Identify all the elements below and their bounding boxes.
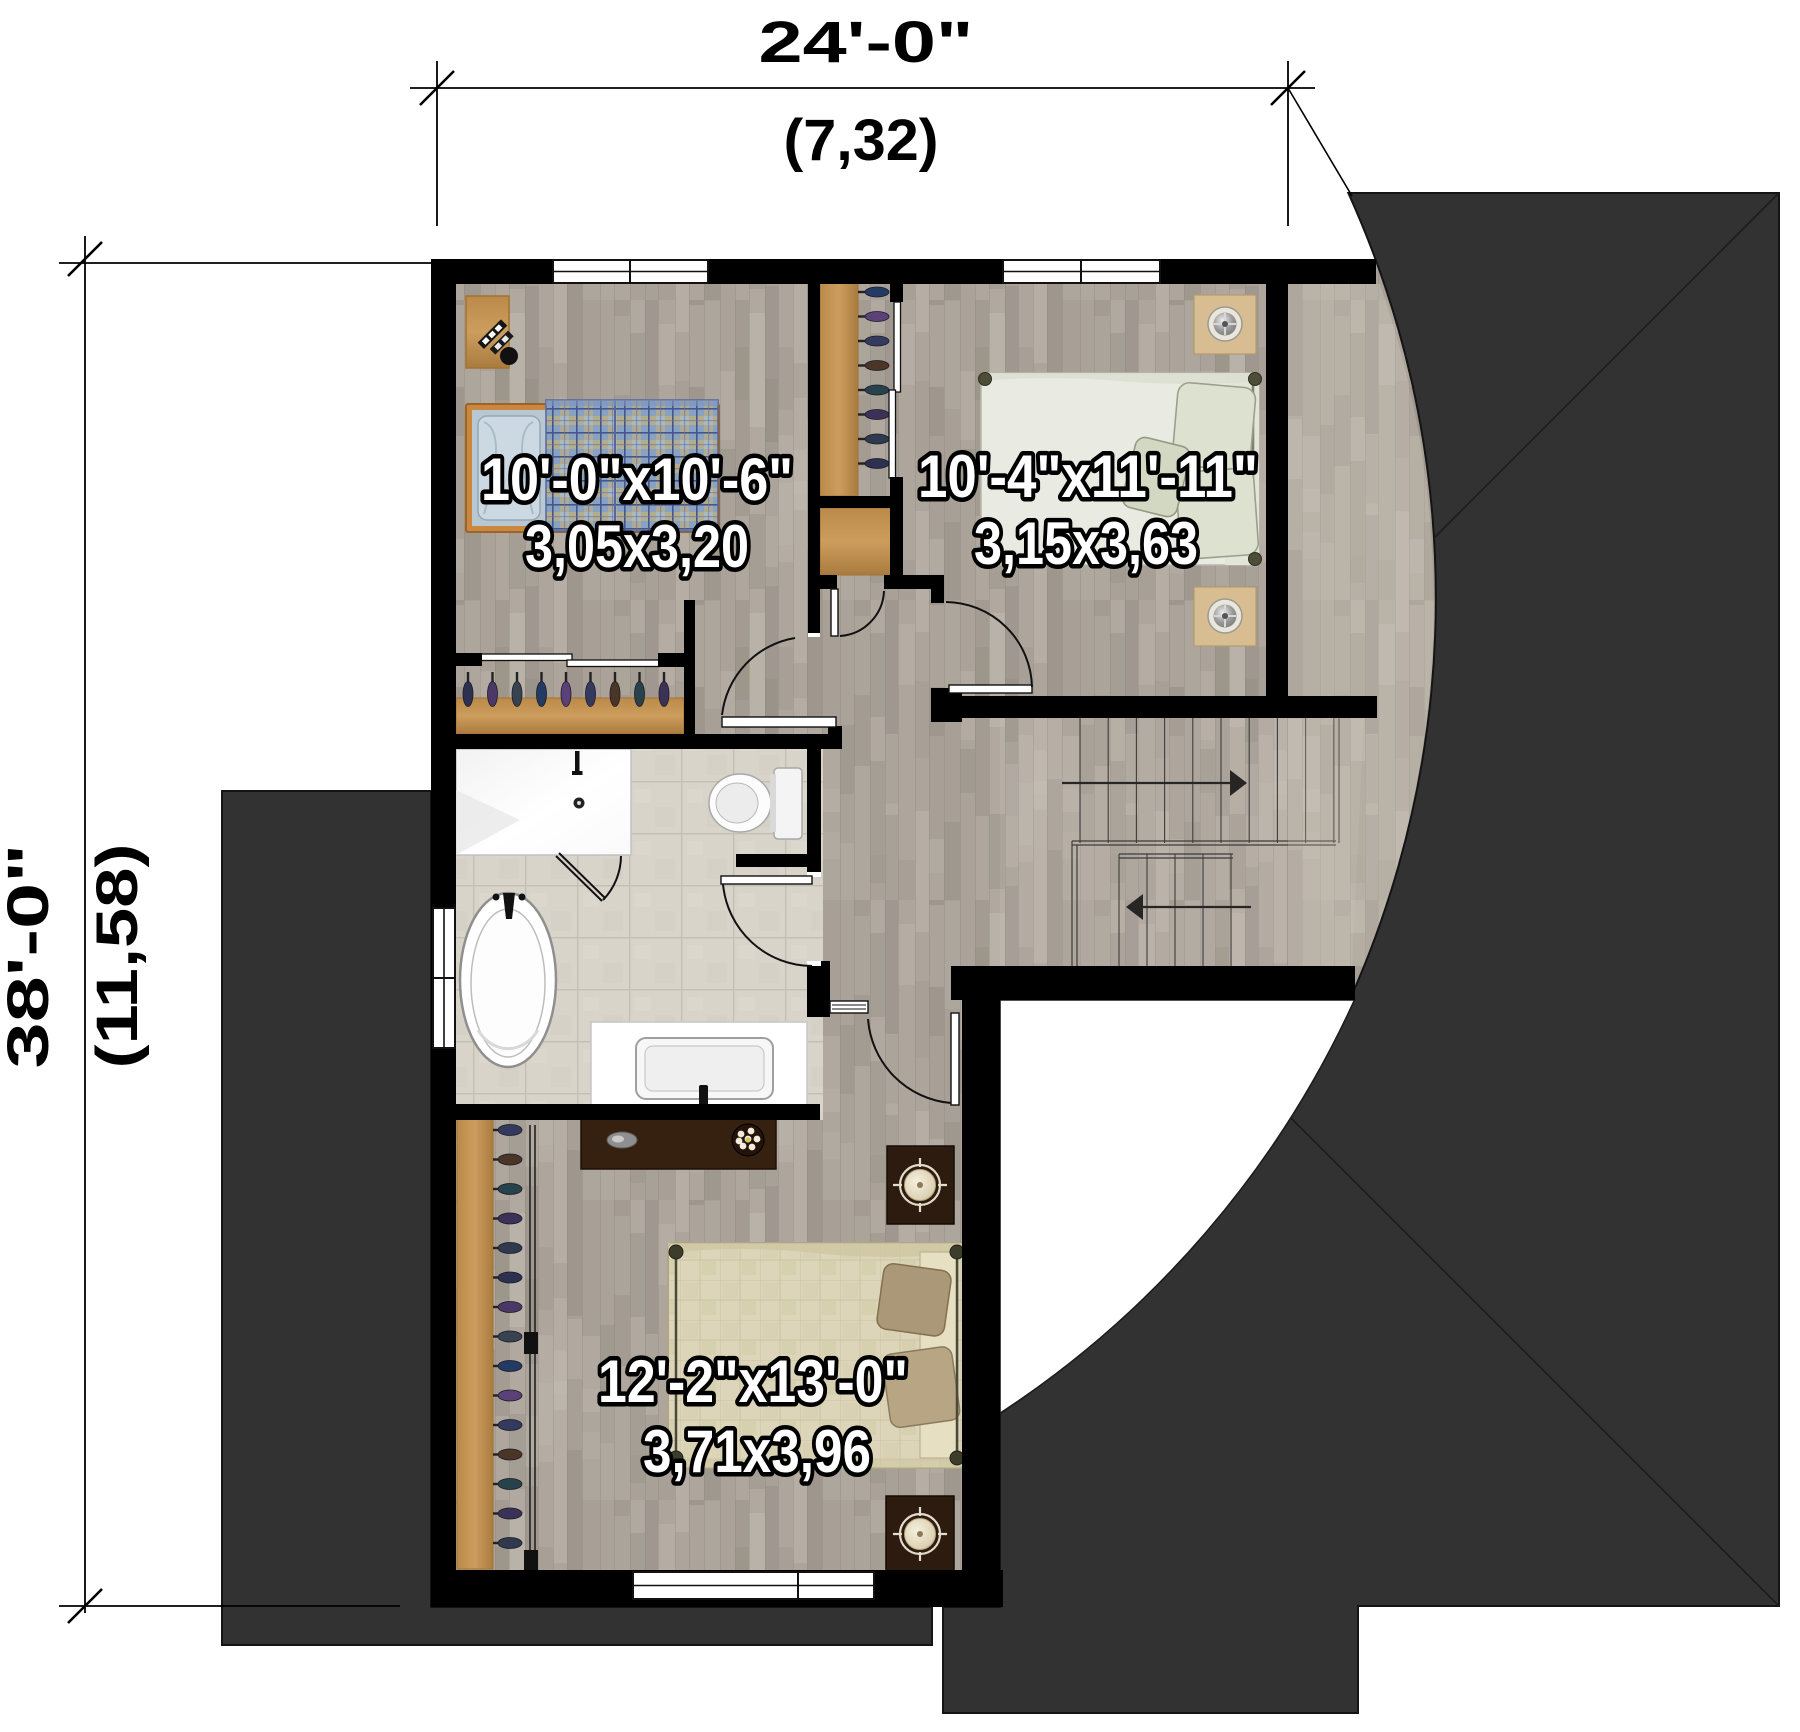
svg-text:3,05x3,20: 3,05x3,20	[525, 513, 749, 580]
svg-text:10'-4"x11'-11": 10'-4"x11'-11"	[918, 443, 1258, 510]
svg-text:38'-0": 38'-0"	[0, 844, 61, 1069]
svg-text:12'-2"x13'-0": 12'-2"x13'-0"	[598, 1348, 908, 1415]
svg-text:(7,32): (7,32)	[784, 108, 939, 173]
svg-text:(11,58): (11,58)	[85, 844, 150, 1069]
svg-text:10'-0"x10'-6": 10'-0"x10'-6"	[481, 446, 793, 513]
svg-text:3,71x3,96: 3,71x3,96	[643, 1418, 871, 1485]
svg-text:3,15x3,63: 3,15x3,63	[974, 510, 1198, 577]
svg-text:24'-0": 24'-0"	[759, 10, 974, 75]
